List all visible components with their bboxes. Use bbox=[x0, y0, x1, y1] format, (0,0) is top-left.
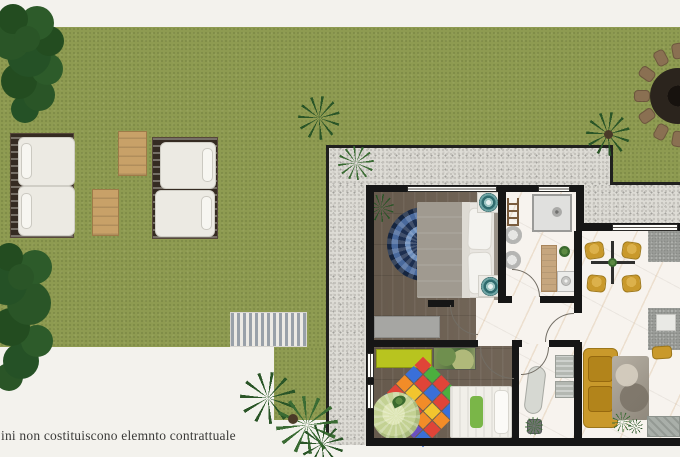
sun-lounger-pillow bbox=[201, 196, 212, 230]
garden-wood-table-2 bbox=[92, 189, 119, 236]
sofa-cushion bbox=[588, 356, 613, 382]
doormat bbox=[647, 416, 680, 437]
kids-bed-pillow bbox=[494, 390, 509, 434]
bed-duvet bbox=[417, 202, 462, 298]
dining-chair bbox=[584, 241, 605, 260]
wall-bottom-exterior bbox=[366, 438, 680, 446]
tree bbox=[14, 26, 40, 52]
kids-wall-art bbox=[433, 347, 476, 370]
gravel-terrace-right bbox=[584, 185, 680, 223]
bathroom-plant bbox=[559, 246, 570, 257]
outdoor-chair bbox=[671, 130, 680, 148]
fern-trunk bbox=[288, 414, 298, 424]
kitchen-sink bbox=[656, 314, 676, 331]
nightstand-decor bbox=[479, 193, 498, 212]
kitchen-stool bbox=[652, 345, 673, 359]
dining-chair bbox=[621, 241, 642, 260]
living-room-plant bbox=[628, 419, 643, 434]
lawn-patch-right bbox=[611, 147, 680, 183]
table-centerpiece bbox=[608, 258, 617, 267]
wall-right-divider-a bbox=[574, 231, 582, 313]
fern bbox=[300, 424, 344, 457]
bed-pillow bbox=[467, 208, 492, 251]
garden-wood-table-1 bbox=[118, 131, 147, 176]
washing-machine-drum bbox=[561, 276, 571, 286]
floor-plan-rendering: ini non costituiscono elemnto contrattua… bbox=[0, 0, 680, 457]
hallway-sideboard bbox=[374, 316, 440, 338]
dining-glass-door bbox=[612, 224, 678, 231]
bathroom-sink bbox=[504, 226, 522, 244]
shrub bbox=[338, 146, 374, 180]
outdoor-chair bbox=[634, 90, 650, 102]
sun-lounger-pillow bbox=[21, 143, 32, 179]
sofa-cushion bbox=[588, 386, 613, 412]
wall-right-divider-b bbox=[574, 342, 582, 446]
dining-chair bbox=[586, 274, 607, 293]
wall-bathroom-bottom-a bbox=[498, 296, 512, 303]
disclaimer-text: ini non costituiscono elemnto contrattua… bbox=[1, 428, 236, 444]
wall-bedroom-bathroom bbox=[498, 188, 506, 303]
shrub bbox=[298, 96, 340, 140]
bathroom-window bbox=[538, 186, 570, 192]
bathroom-vanity bbox=[541, 245, 557, 292]
living-room-rug bbox=[612, 356, 649, 420]
kids-window-1 bbox=[367, 353, 374, 378]
dining-chair bbox=[621, 274, 642, 293]
tree bbox=[8, 264, 34, 290]
wall-kids-top bbox=[366, 340, 478, 347]
kids-window-2 bbox=[367, 384, 374, 409]
kitchen-counter-top bbox=[648, 231, 680, 262]
sun-lounger-pillow bbox=[21, 193, 32, 229]
bath-mat bbox=[555, 355, 574, 378]
garden-stairs bbox=[230, 312, 307, 347]
gravel-terrace-left bbox=[329, 185, 366, 445]
lawn-upper bbox=[0, 27, 680, 147]
bath-mat bbox=[555, 381, 574, 398]
towel-ladder bbox=[507, 198, 519, 226]
bathroom2-plant bbox=[525, 417, 543, 435]
bedroom-window bbox=[407, 186, 497, 192]
shrub-trunk bbox=[604, 130, 613, 139]
wall-step-vertical bbox=[576, 185, 584, 231]
shower-head bbox=[552, 207, 562, 217]
kids-bed-blanket bbox=[470, 396, 483, 428]
sun-lounger-pillow bbox=[202, 148, 213, 182]
